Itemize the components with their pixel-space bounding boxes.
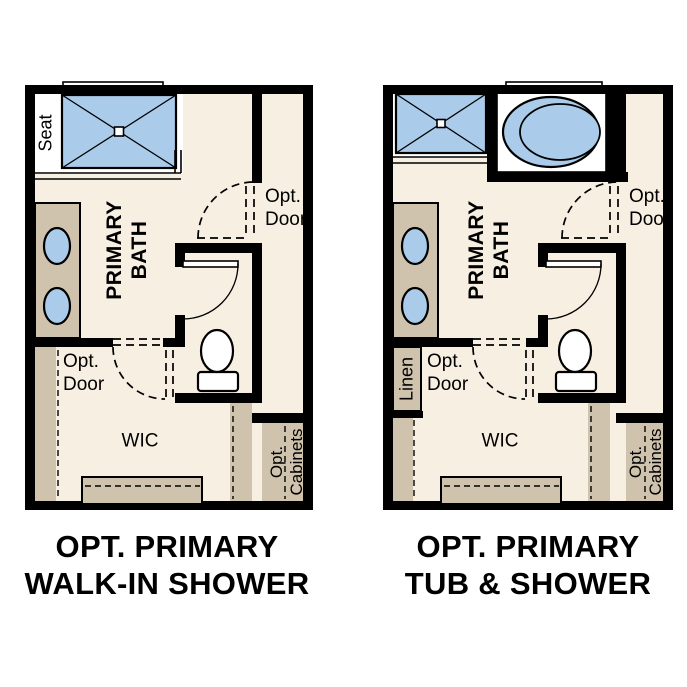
cabinets-line1: Opt.	[626, 428, 646, 495]
linen-label: Linen	[396, 357, 419, 401]
caption-line1: OPT. PRIMARY	[0, 528, 367, 565]
toilet-bowl	[201, 330, 233, 372]
caption-line2: TUB & SHOWER	[328, 565, 687, 602]
vanity-two-sinks	[393, 203, 438, 338]
wic-label: WIC	[122, 430, 159, 453]
room-label-primary-bath: PRIMARY BATH	[102, 200, 152, 300]
caption-walk-in-shower: OPT. PRIMARY WALK-IN SHOWER	[0, 528, 367, 602]
cabinets-line1: Opt.	[267, 428, 287, 495]
opt-door-line1: Opt.	[629, 185, 670, 208]
opt-door-label-upper: Opt. Door	[629, 185, 670, 231]
room-label-primary-bath: PRIMARY BATH	[464, 200, 514, 300]
toilet-tank	[556, 372, 596, 391]
opt-door-line1: Opt.	[63, 350, 104, 373]
opt-door-label-lower: Opt. Door	[427, 350, 468, 396]
opt-door-line2: Door	[427, 373, 468, 396]
opt-cabinets-label: Opt. Cabinets	[626, 428, 666, 495]
toilet-bowl	[559, 330, 591, 372]
bathtub	[497, 92, 606, 172]
opt-door-line2: Door	[63, 373, 104, 396]
cabinets-line2: Cabinets	[646, 428, 666, 495]
opt-cabinets-label: Opt. Cabinets	[267, 428, 307, 495]
toilet-tank	[198, 372, 238, 391]
vanity-two-sinks	[35, 203, 80, 338]
opt-door-line1: Opt.	[427, 350, 468, 373]
door-leaf	[183, 261, 238, 267]
caption-tub-and-shower: OPT. PRIMARY TUB & SHOWER	[328, 528, 687, 602]
opt-door-label-lower: Opt. Door	[63, 350, 104, 396]
opt-door-label-upper: Opt. Door	[265, 185, 306, 231]
caption-line1: OPT. PRIMARY	[328, 528, 687, 565]
caption-line2: WALK-IN SHOWER	[0, 565, 367, 602]
door-leaf	[546, 261, 601, 267]
room-label-line1: PRIMARY	[464, 200, 489, 300]
room-label-line2: BATH	[489, 200, 514, 300]
room-label-line2: BATH	[127, 200, 152, 300]
room-label-line1: PRIMARY	[102, 200, 127, 300]
floorplan-sheet: Seat PRIMARY BATH Opt. Door Opt. Door WI…	[0, 0, 687, 687]
seat-label: Seat	[35, 114, 58, 151]
cabinets-line2: Cabinets	[287, 428, 307, 495]
wic-label: WIC	[482, 430, 519, 453]
opt-door-line2: Door	[629, 208, 670, 231]
shower	[393, 93, 488, 163]
opt-door-line1: Opt.	[265, 185, 306, 208]
opt-door-line2: Door	[265, 208, 306, 231]
